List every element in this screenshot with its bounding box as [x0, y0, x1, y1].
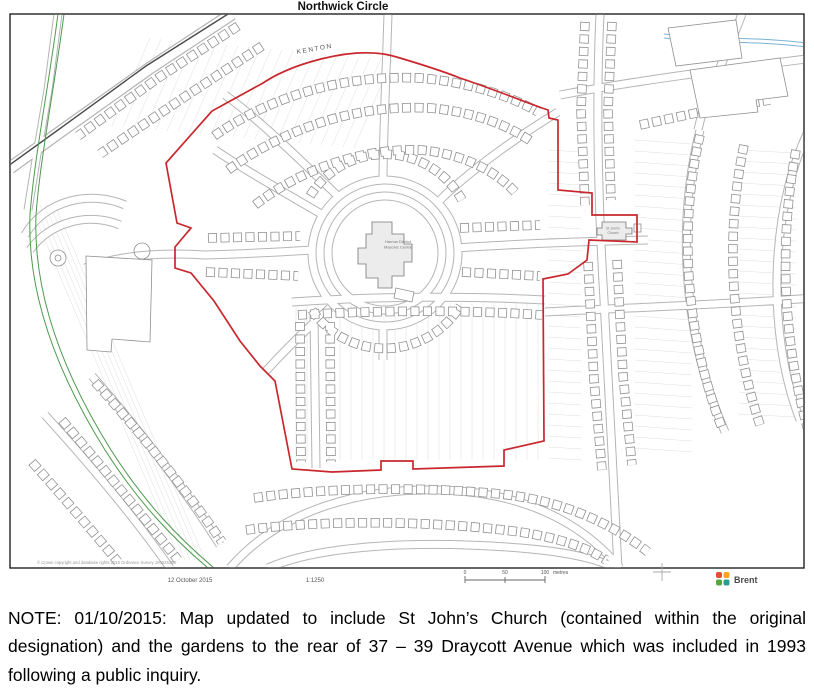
masonic-centre-label-1: Harrow District	[385, 239, 412, 244]
copyright-text: © Crown copyright and database rights 20…	[37, 560, 176, 565]
map-scale: 1:1250	[306, 578, 325, 584]
scale-bar	[465, 576, 545, 583]
page-title: Northwick Circle	[298, 1, 389, 13]
scale-bar-0: 0	[464, 570, 467, 576]
page: { "map": { "title": "Northwick Circle", …	[0, 0, 814, 697]
brent-logo-icon	[716, 572, 730, 586]
scale-bar-100: 100	[541, 570, 550, 576]
scale-bar-unit: metres	[553, 570, 569, 576]
bandstand	[50, 250, 66, 266]
masonic-centre-label-2: Masonic Centre	[384, 245, 413, 250]
map-date: 12 October 2015	[168, 578, 213, 584]
note-text: NOTE: 01/10/2015: Map updated to include…	[8, 604, 806, 689]
map-canvas: Northwick Circle	[0, 0, 814, 600]
st-johns-church-label-2: Church	[608, 231, 619, 235]
st-johns-church-label-1: St John's	[606, 227, 620, 231]
brent-logo-text: Brent	[734, 575, 758, 585]
scale-bar-50: 50	[502, 570, 508, 576]
